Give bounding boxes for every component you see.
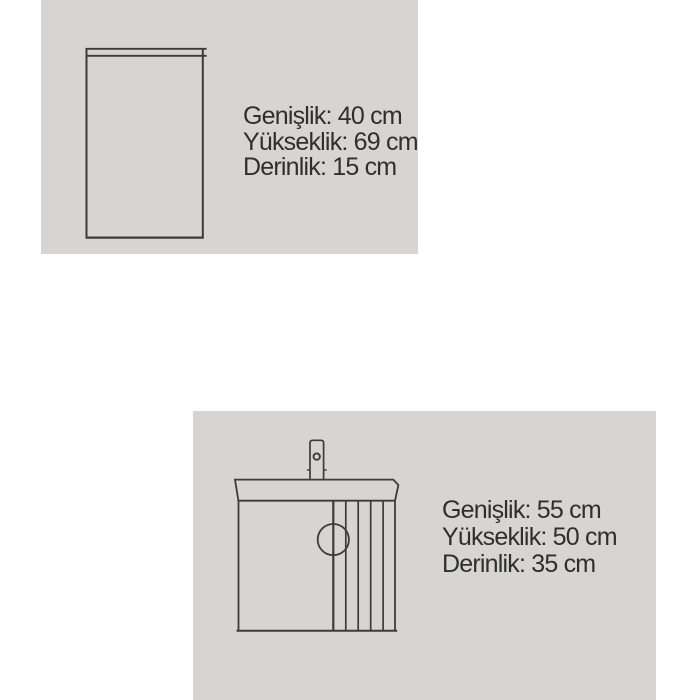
dimension-depth: Derinlik: 15 cm [243,155,418,181]
basin-counter-outline [235,480,398,501]
faucet-hole-icon [314,453,320,459]
product-spec-image: Genişlik: 40 cm Yükseklik: 69 cm Derinli… [0,0,700,700]
spec-panel-vanity: Genişlik: 55 cm Yükseklik: 50 cm Derinli… [193,411,656,700]
spec-panel-cabinet: Genişlik: 40 cm Yükseklik: 69 cm Derinli… [41,0,418,254]
dimension-width: Genişlik: 55 cm [442,497,617,524]
dimension-depth: Derinlik: 35 cm [442,551,617,578]
dimension-height: Yükseklik: 50 cm [442,524,617,551]
dimension-height: Yükseklik: 69 cm [243,130,418,156]
dimension-width: Genişlik: 40 cm [243,104,418,130]
dimension-list-cabinet: Genişlik: 40 cm Yükseklik: 69 cm Derinli… [243,104,418,181]
dimension-list-vanity: Genişlik: 55 cm Yükseklik: 50 cm Derinli… [442,497,617,578]
